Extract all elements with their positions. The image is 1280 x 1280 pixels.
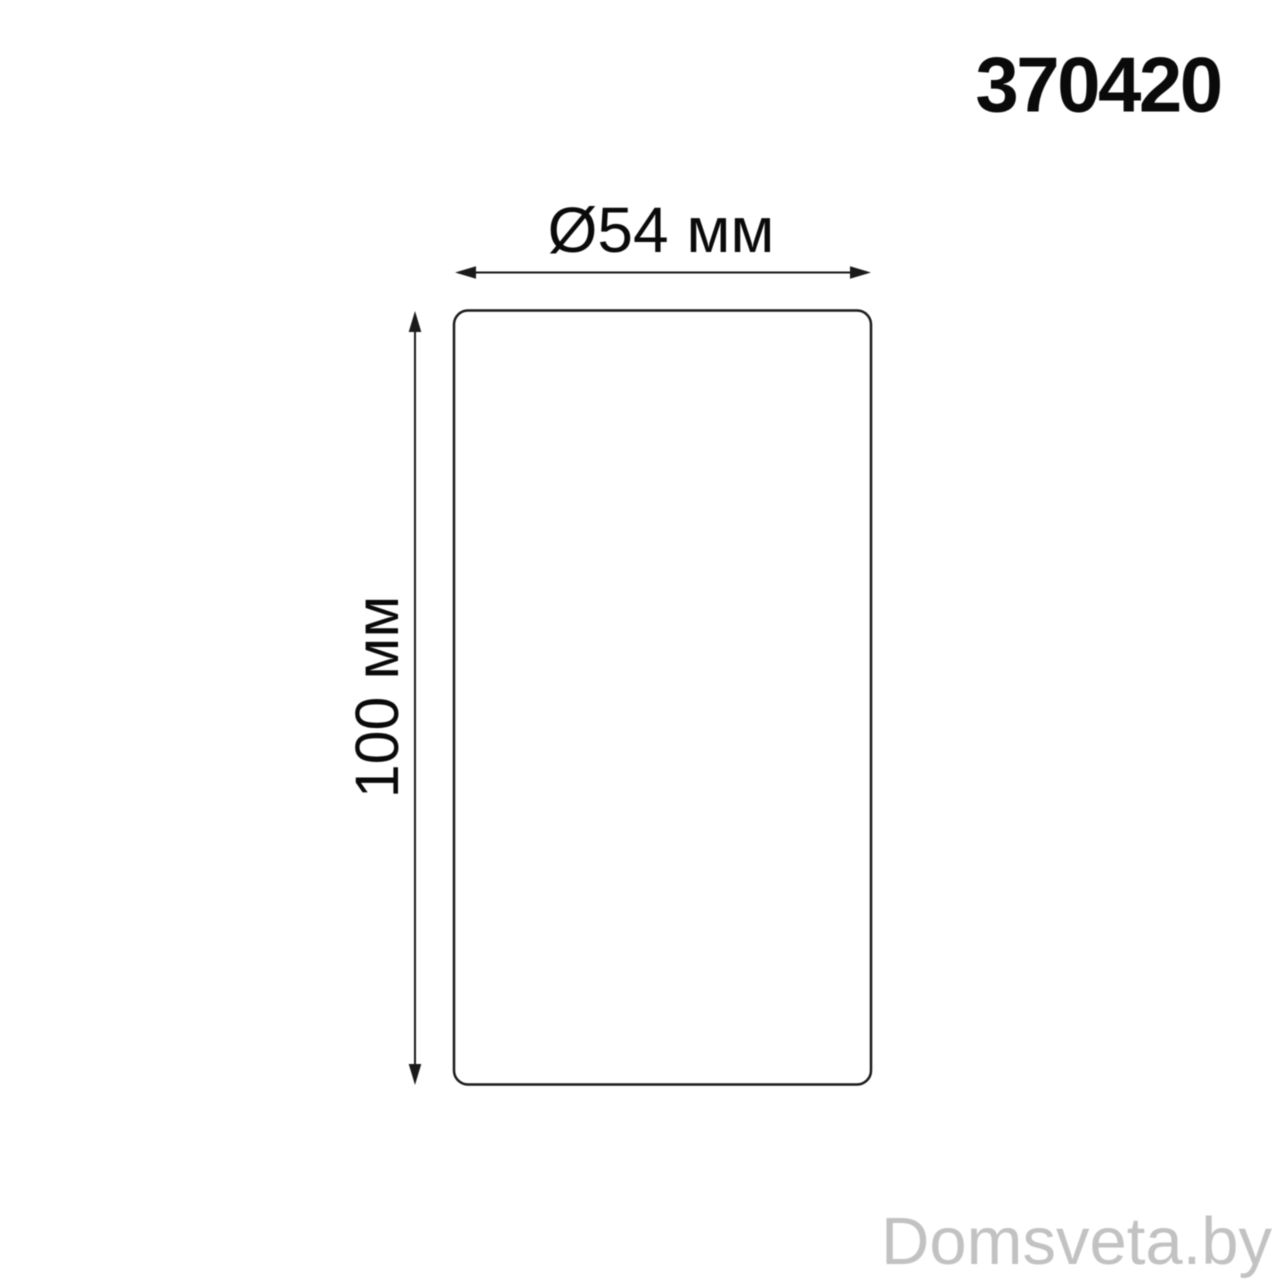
svg-text:Domsveta.by: Domsveta.by — [881, 1204, 1272, 1279]
svg-text:100 мм: 100 мм — [343, 596, 411, 799]
svg-text:Ø54 мм: Ø54 мм — [548, 194, 775, 266]
svg-text:370420: 370420 — [975, 41, 1220, 129]
